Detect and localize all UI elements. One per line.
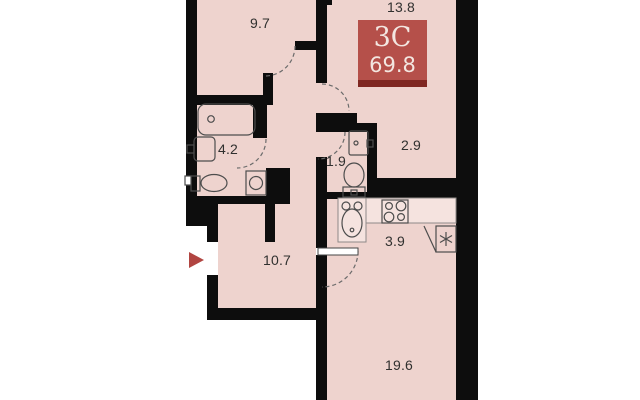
- washbasin-faucet-icon: [187, 145, 194, 153]
- entry-arrow-icon: [189, 252, 204, 268]
- floor-plan: 9.7 13.8 4.2 1.9 2.9 10.7 3.9 19.6 3C 69…: [0, 0, 640, 400]
- door-swing-arc-bedroom2: [322, 84, 349, 111]
- door-swing-arc-bathroom: [237, 139, 266, 168]
- label-kitchen: 3.9: [385, 233, 405, 249]
- wc-sink-drain-icon: [354, 141, 358, 145]
- washbasin-icon: [194, 137, 215, 161]
- washing-machine-drum-icon: [250, 177, 263, 190]
- unit-badge: 3C 69.8: [358, 20, 427, 87]
- door-swing-arc-bedroom1: [265, 46, 295, 76]
- unit-type: 3C: [358, 23, 427, 53]
- bathtub-icon: [198, 104, 255, 135]
- label-bedroom2: 13.8: [387, 0, 415, 15]
- door-leaf-living: [318, 248, 358, 255]
- label-living: 19.6: [385, 357, 413, 373]
- label-hallway: 10.7: [263, 252, 291, 268]
- badge-strip: [358, 80, 427, 87]
- label-storage: 2.9: [401, 137, 421, 153]
- fixtures-layer: [0, 0, 640, 400]
- cistern-button-icon: [185, 176, 191, 185]
- wc-toilet-button-icon: [351, 190, 357, 195]
- door-swing-arc-living: [322, 251, 358, 287]
- label-bedroom1: 9.7: [250, 15, 270, 31]
- toilet-bowl-icon: [201, 175, 227, 192]
- wc-toilet-bowl-icon: [344, 163, 364, 187]
- counter-end-line: [424, 226, 436, 252]
- bathtub-drain-icon: [208, 116, 215, 123]
- unit-total-area: 69.8: [358, 53, 427, 77]
- label-wc: 1.9: [326, 153, 346, 169]
- label-bathroom: 4.2: [218, 141, 238, 157]
- toilet-tank-icon: [191, 176, 200, 191]
